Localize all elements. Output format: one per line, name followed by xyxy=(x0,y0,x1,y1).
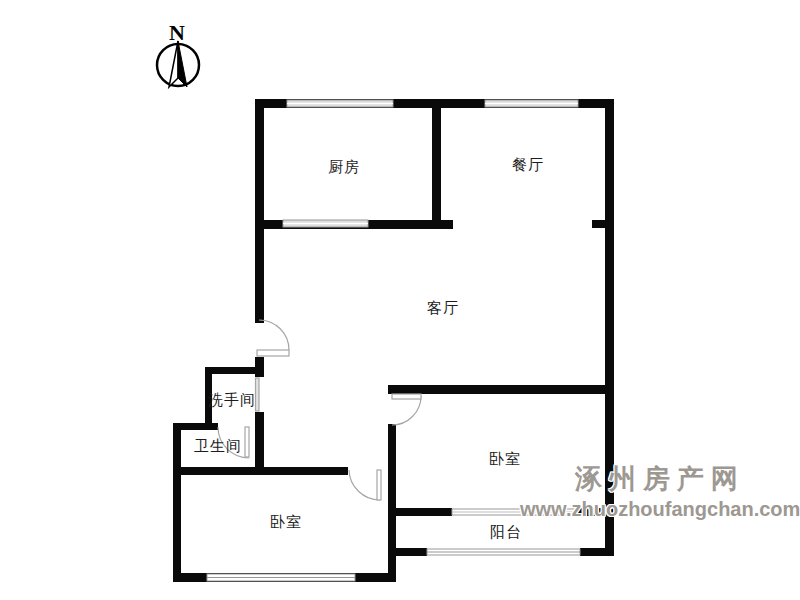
wall-dining-bottom-stub xyxy=(592,220,605,228)
compass-needle-right xyxy=(178,41,187,87)
window-kitchen-top xyxy=(287,100,393,107)
wall-right xyxy=(605,99,614,556)
room-label-bathroom: 卫生间 xyxy=(194,437,242,456)
door-bedroom-right xyxy=(392,394,421,425)
wall-bedroom-right-top xyxy=(388,385,614,394)
room-label-living: 客厅 xyxy=(427,299,459,318)
window-balcony-slider xyxy=(452,509,577,515)
room-label-washroom: 洗手间 xyxy=(208,391,256,410)
window-dining-top xyxy=(485,100,578,107)
door-entry xyxy=(257,320,289,356)
window-kitchen-pass xyxy=(283,220,368,227)
floor-plan: 厨房 餐厅 客厅 洗手间 卫生间 卧室 卧室 阳台 N 涿州房产网 www.zh… xyxy=(0,0,800,600)
wall-balcony-bottom-left xyxy=(396,548,427,556)
room-label-bedroom-left: 卧室 xyxy=(270,513,302,532)
compass-north-label: N xyxy=(169,20,185,46)
wall-washroom-top xyxy=(205,367,264,374)
room-label-balcony: 阳台 xyxy=(490,523,522,542)
door-bedroom-left xyxy=(349,470,381,500)
floor-plan-drawing xyxy=(0,0,800,600)
wall-balcony-divider-right xyxy=(577,508,605,516)
wall-kitchen-dining-divider xyxy=(432,108,441,220)
window-bedroom-left-bottom xyxy=(207,574,355,581)
room-label-bedroom-right: 卧室 xyxy=(489,450,521,469)
room-label-kitchen: 厨房 xyxy=(328,158,360,177)
wall-left-lower xyxy=(255,412,264,475)
wall-balcony-divider-left xyxy=(396,508,452,516)
window-balcony-bottom xyxy=(427,549,580,555)
wall-outer-left-lower xyxy=(173,423,181,581)
room-label-dining: 餐厅 xyxy=(512,156,544,175)
wall-center-vertical xyxy=(388,424,396,581)
wall-bedroom-left-top xyxy=(181,467,348,475)
compass-needle-left xyxy=(169,41,178,87)
door-washroom xyxy=(256,378,260,411)
wall-balcony-bottom-right xyxy=(580,548,605,556)
north-compass xyxy=(157,41,199,87)
wall-left-upper xyxy=(255,99,264,323)
